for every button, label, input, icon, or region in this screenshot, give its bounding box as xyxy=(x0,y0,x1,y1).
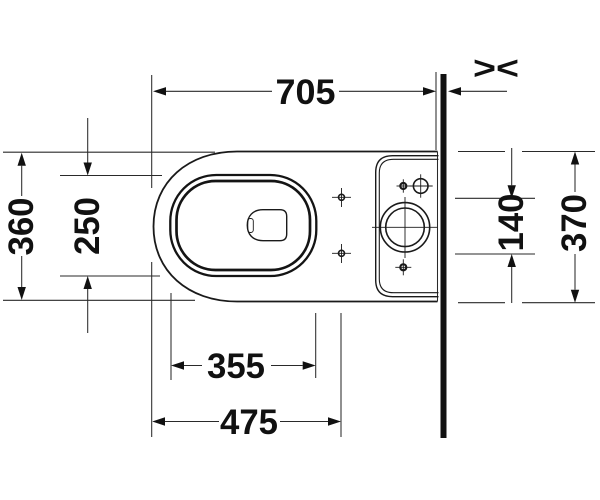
dim-seat-hole-spacing: 140 xyxy=(455,148,535,303)
fixing-hole-bottom xyxy=(395,259,411,275)
seat-hinge-hole-bottom xyxy=(332,244,351,263)
wall-line xyxy=(441,74,447,438)
dim-label-140: 140 xyxy=(492,194,531,252)
bowl-rim xyxy=(170,175,316,276)
dim-label-475: 475 xyxy=(220,403,278,442)
dim-label-360: 360 xyxy=(2,198,41,256)
dim-bowl-inner-length: 355 xyxy=(171,293,316,386)
dim-label-370: 370 xyxy=(555,194,594,252)
dim-label-705: 705 xyxy=(276,73,336,112)
drawing-canvas: 705 >< 360 250 140 xyxy=(0,0,600,500)
dim-label-355: 355 xyxy=(207,347,265,386)
drain-opening xyxy=(247,210,286,241)
dim-wall-gap: >< xyxy=(448,50,519,96)
wall-gap-marker: >< xyxy=(473,50,519,86)
flush-valve-circle xyxy=(372,197,438,258)
dim-label-250: 250 xyxy=(68,197,107,255)
fixing-hole-top xyxy=(397,179,411,192)
toilet-body-outline xyxy=(154,152,438,302)
dim-total-depth: 705 xyxy=(152,72,436,188)
toilet-technical-drawing: 705 >< 360 250 140 xyxy=(0,0,600,500)
dim-body-width: 360 xyxy=(2,152,215,300)
seat-hinge-hole-top xyxy=(332,188,351,207)
inlet-hole-circle xyxy=(409,174,432,197)
